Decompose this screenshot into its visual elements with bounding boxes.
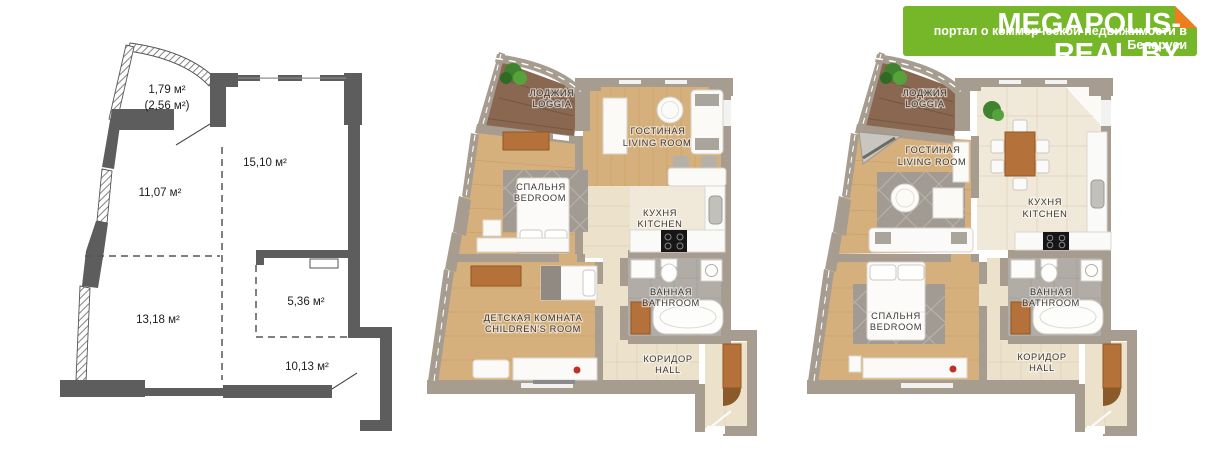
dining-table-icon xyxy=(657,97,683,123)
area-label-room-bottom-left: 13,18 м² xyxy=(136,314,180,326)
side-table-icon xyxy=(933,188,963,218)
room-label-kitchen-ru: КУХНЯ xyxy=(643,208,677,218)
room-label-bathroom-ru: ВАННАЯ xyxy=(650,287,692,297)
site-logo[interactable]: MEGAPOLIS-REAL.BY портал о коммерческой … xyxy=(903,6,1197,56)
room-label-children-en: CHILDREN'S ROOM xyxy=(485,324,581,334)
floor-plan-furnished-2-drawing: ЛОДЖИЯ LOGGIA ГОСТИНАЯ LIVING ROOM КУХНЯ… xyxy=(805,40,1160,476)
vent-shaft xyxy=(310,259,338,268)
room-label-loggia-ru: ЛОДЖИЯ xyxy=(902,88,947,98)
balcony-hatched-wall xyxy=(76,43,216,382)
room-label-living-ru: ГОСТИНАЯ xyxy=(906,145,961,155)
area-label-loggia: 1,79 м² xyxy=(148,84,185,96)
area-label-room-mid-left: 11,07 м² xyxy=(139,187,182,199)
children-bed-icon xyxy=(541,266,597,300)
room-label-loggia-en: LOGGIA xyxy=(905,99,944,109)
room-label-kitchen-en: KITCHEN xyxy=(637,219,682,229)
coffee-table-icon xyxy=(891,184,919,212)
sofa-icon xyxy=(869,228,973,252)
room-label-living-en: LIVING ROOM xyxy=(623,138,692,148)
bath-sink-icon xyxy=(1011,260,1035,278)
washer-icon xyxy=(701,260,722,281)
room-label-kitchen-en: KITCHEN xyxy=(1022,209,1067,219)
hall-cabinet-icon xyxy=(723,344,741,406)
listing-image: 1,79 м² (2,56 м²) 15,10 м² 11,07 м² 13,1… xyxy=(0,0,1217,476)
floor-plan-furnished-1: ЛОДЖИЯ LOGGIA ГОСТИНАЯ LIVING ROOM СПАЛЬ… xyxy=(425,40,775,476)
room-label-loggia-ru: ЛОДЖИЯ xyxy=(529,88,574,98)
room-label-bathroom-ru: ВАННАЯ xyxy=(1030,287,1072,297)
logo-tagline: портал о коммерческой недвижимости в Бел… xyxy=(893,24,1187,52)
floor-plan-furnished-2: ЛОДЖИЯ LOGGIA ГОСТИНАЯ LIVING ROOM КУХНЯ… xyxy=(805,40,1160,476)
room-label-living-ru: ГОСТИНАЯ xyxy=(631,126,686,136)
children-wardrobe-icon xyxy=(471,266,521,286)
washer-icon xyxy=(1081,260,1102,281)
chair-icon xyxy=(473,360,509,378)
room-label-bedroom-ru: СПАЛЬНЯ xyxy=(871,311,921,321)
area-label-hall: 10,13 м² xyxy=(285,361,329,373)
room-label-hall-ru: КОРИДОР xyxy=(643,354,692,364)
room-label-living-en: LIVING ROOM xyxy=(898,157,967,167)
balcony-door-swing xyxy=(176,124,210,145)
room-label-bedroom-en: BEDROOM xyxy=(870,322,922,332)
sink-icon xyxy=(709,196,722,224)
sink-icon xyxy=(1091,180,1104,208)
room-label-bathroom-en: BATHROOM xyxy=(642,298,700,308)
bench-icon xyxy=(863,358,967,378)
floor-plan-schematic-drawing: 1,79 м² (2,56 м²) 15,10 м² 11,07 м² 13,1… xyxy=(60,35,405,465)
bedroom-dresser-icon xyxy=(477,238,569,252)
room-label-bathroom-en: BATHROOM xyxy=(1022,298,1080,308)
walls xyxy=(60,73,392,431)
hall-cabinet-icon xyxy=(1103,344,1121,406)
nightstand-icon xyxy=(849,356,861,372)
room-label-kitchen-ru: КУХНЯ xyxy=(1028,197,1062,207)
desk-icon xyxy=(513,358,597,384)
area-label-room-top-right: 15,10 м² xyxy=(243,157,287,169)
stove-icon xyxy=(1043,232,1069,250)
stove-icon xyxy=(661,230,687,252)
room-label-loggia-en: LOGGIA xyxy=(532,99,571,109)
room-label-hall-en: HALL xyxy=(1029,363,1055,373)
bath-sink-icon xyxy=(631,260,655,278)
room-label-bedroom-ru: СПАЛЬНЯ xyxy=(516,182,566,192)
room-label-children-ru: ДЕТСКАЯ КОМНАТА xyxy=(484,313,583,323)
desk-lamp-icon xyxy=(950,366,957,373)
area-label-bathroom: 5,36 м² xyxy=(287,296,324,308)
entry-door-swing xyxy=(332,373,357,389)
toilet-icon xyxy=(1041,264,1057,282)
room-label-hall-ru: КОРИДОР xyxy=(1017,352,1066,362)
room-label-hall-en: HALL xyxy=(655,365,681,375)
dresser-icon xyxy=(503,132,549,150)
floor-plan-schematic: 1,79 м² (2,56 м²) 15,10 м² 11,07 м² 13,1… xyxy=(60,35,405,465)
sofa-icon xyxy=(691,90,723,154)
dashed-partitions xyxy=(85,147,348,380)
toilet-icon xyxy=(661,264,677,282)
floor-plan-furnished-1-drawing: ЛОДЖИЯ LOGGIA ГОСТИНАЯ LIVING ROOM СПАЛЬ… xyxy=(425,40,775,476)
room-label-bedroom-en: BEDROOM xyxy=(514,193,566,203)
dining-table-icon xyxy=(1005,132,1035,176)
desk-lamp-icon xyxy=(574,367,581,374)
area-label-loggia-total: (2,56 м²) xyxy=(145,100,190,112)
side-table-icon xyxy=(483,220,501,236)
